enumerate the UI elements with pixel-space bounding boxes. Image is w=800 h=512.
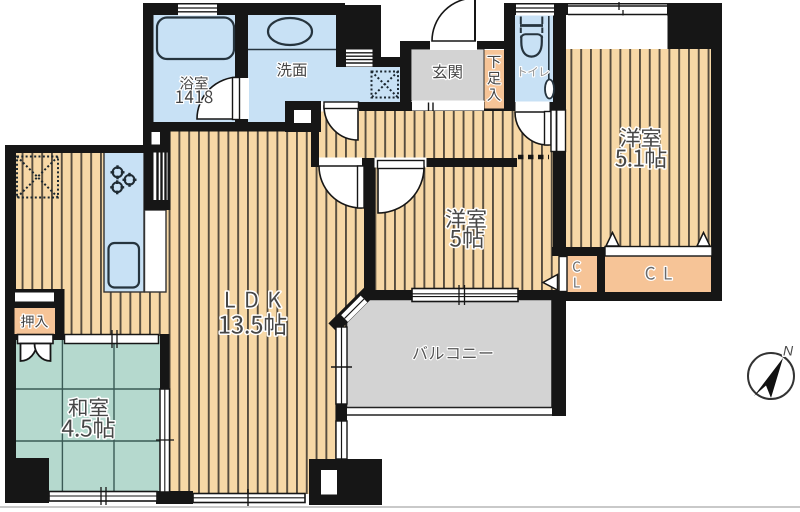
svg-text:N: N [783, 343, 794, 359]
